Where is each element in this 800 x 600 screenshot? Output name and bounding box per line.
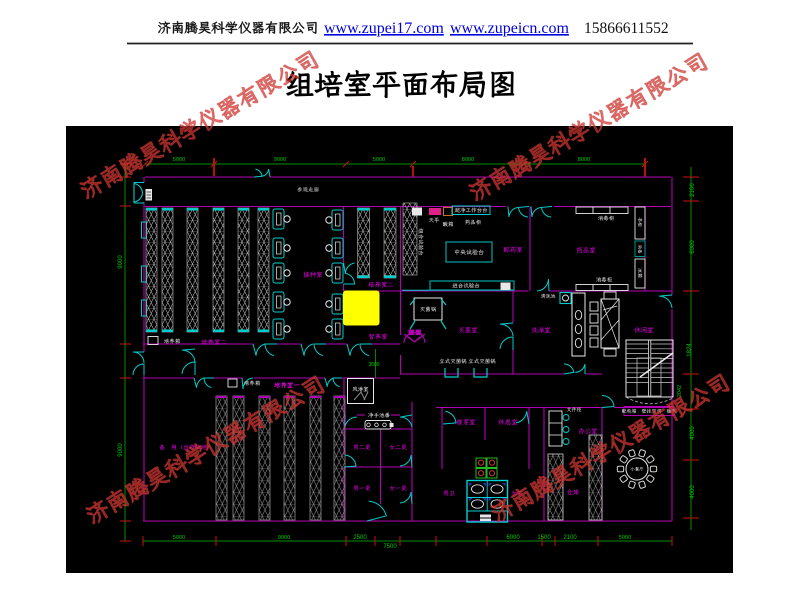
svg-text:2042: 2042 — [677, 385, 683, 397]
svg-text:15866611552: 15866611552 — [584, 20, 669, 37]
svg-text:9000: 9000 — [278, 535, 290, 541]
svg-text:5000: 5000 — [373, 157, 385, 163]
svg-text:5000: 5000 — [173, 157, 185, 163]
svg-text:www.zupeicn.com: www.zupeicn.com — [450, 20, 569, 37]
svg-text:9000: 9000 — [118, 255, 124, 269]
svg-text:9000: 9000 — [274, 157, 286, 163]
svg-text:7500: 7500 — [383, 544, 397, 550]
svg-text:6000: 6000 — [506, 535, 520, 541]
svg-text:5000: 5000 — [619, 535, 631, 541]
svg-text:2100: 2100 — [690, 183, 696, 197]
svg-text:8000: 8000 — [462, 157, 474, 163]
svg-text:9000: 9000 — [118, 443, 124, 457]
svg-text:4000: 4000 — [690, 485, 696, 499]
svg-text:8000: 8000 — [578, 157, 590, 163]
svg-text:5000: 5000 — [173, 535, 185, 541]
svg-text:4000: 4000 — [690, 426, 696, 440]
svg-text:3500: 3500 — [368, 362, 379, 368]
svg-text:6000: 6000 — [690, 240, 696, 254]
svg-text:www.zupei17.com: www.zupei17.com — [324, 20, 444, 37]
svg-text:2500: 2500 — [353, 535, 367, 541]
svg-text:1824: 1824 — [687, 343, 693, 357]
svg-text:2100: 2100 — [563, 535, 577, 541]
svg-text:1500: 1500 — [537, 535, 551, 541]
